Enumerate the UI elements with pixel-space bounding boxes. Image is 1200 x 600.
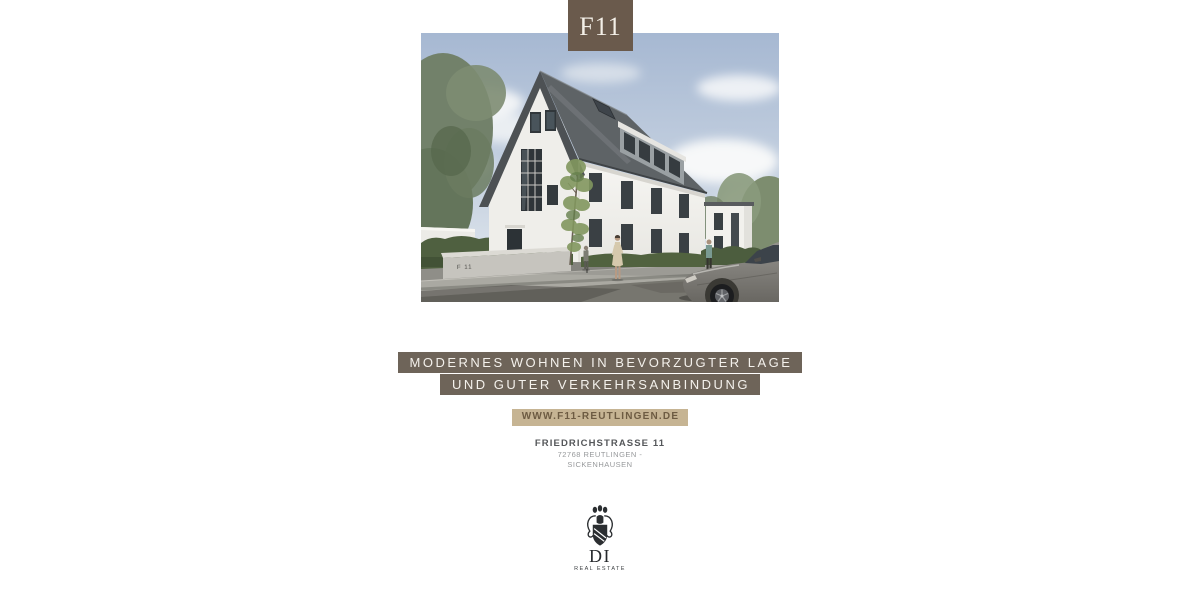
hero-rendering: F 11 (421, 33, 779, 302)
address-district: SICKENHAUSEN (0, 460, 1200, 470)
crest-icon (583, 505, 617, 547)
address-street: FRIEDRICHSTRASSE 11 (0, 438, 1200, 450)
logo-monogram: DI (0, 548, 1200, 565)
headline-line-2: UND GUTER VERKEHRSANBINDUNG (440, 374, 760, 395)
website-row: WWW.F11-REUTLINGEN.DE (0, 406, 1200, 426)
brand-code: F11 (579, 10, 622, 42)
wall-sign-text: F 11 (457, 264, 473, 271)
logo-subtitle: REAL ESTATE (0, 566, 1200, 573)
company-logo: DI REAL ESTATE (0, 505, 1200, 573)
headline: MODERNES WOHNEN IN BEVORZUGTER LAGE UND … (0, 352, 1200, 395)
brand-box: F11 (568, 0, 633, 51)
headline-line-1: MODERNES WOHNEN IN BEVORZUGTER LAGE (398, 352, 803, 373)
website-link[interactable]: WWW.F11-REUTLINGEN.DE (512, 409, 688, 426)
address-block: FRIEDRICHSTRASSE 11 72768 REUTLINGEN - S… (0, 438, 1200, 469)
address-city: 72768 REUTLINGEN - (0, 450, 1200, 460)
brochure-page: F 11 (0, 0, 1200, 600)
